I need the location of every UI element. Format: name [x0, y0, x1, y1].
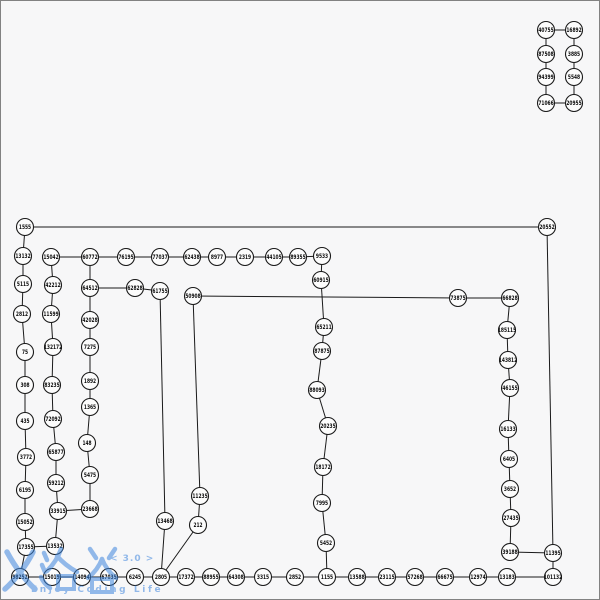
- graph-node-17355[interactable]: 17355: [18, 539, 35, 556]
- graph-node-label: 6405: [503, 456, 515, 463]
- graph-edge-11395-20552: [547, 227, 553, 553]
- graph-node-5475[interactable]: 5475: [82, 467, 99, 484]
- graph-node-65877[interactable]: 65877: [48, 444, 65, 461]
- graph-node-75[interactable]: 75: [17, 344, 34, 361]
- graph-node-46155[interactable]: 46155: [502, 380, 519, 397]
- graph-node-13468[interactable]: 13468: [157, 513, 174, 530]
- graph-node-label: 88955: [203, 574, 218, 581]
- graph-node-13532[interactable]: 13532: [47, 538, 64, 555]
- graph-node-5452[interactable]: 5452: [318, 535, 335, 552]
- graph-node-143812[interactable]: 143812: [499, 352, 517, 369]
- graph-node-label: 59212: [48, 480, 63, 487]
- graph-node-label: 132172: [44, 344, 62, 351]
- graph-node-98252[interactable]: 98252: [12, 569, 29, 586]
- graph-node-label: 60772: [82, 254, 97, 261]
- graph-node-label: 5452: [320, 540, 332, 547]
- graph-node-label: 18172: [315, 464, 330, 471]
- graph-node-42212[interactable]: 42212: [45, 277, 62, 294]
- graph-node-label: 42212: [45, 282, 60, 289]
- graph-node-212[interactable]: 212: [190, 517, 207, 534]
- graph-node-40755[interactable]: 40755: [538, 22, 555, 39]
- graph-node-13588[interactable]: 13588: [349, 569, 366, 586]
- graph-node-label: 1365: [84, 404, 96, 411]
- graph-node-89355[interactable]: 89355: [290, 249, 307, 266]
- graph-node-88955[interactable]: 88955: [203, 569, 220, 586]
- graph-node-label: 66675: [437, 574, 452, 581]
- graph-edge-50908-11235: [193, 296, 200, 496]
- graph-node-label: 2812: [16, 311, 28, 318]
- graph-node-3315[interactable]: 3315: [255, 569, 272, 586]
- graph-node-87508[interactable]: 87508: [538, 46, 555, 63]
- graph-node-label: 16892: [566, 27, 581, 34]
- graph-node-label: 3772: [20, 454, 32, 461]
- graph-node-label: 57268: [407, 574, 422, 581]
- graph-node-label: 11235: [192, 493, 207, 500]
- graph-node-label: 65211: [316, 324, 331, 331]
- graph-node-13132[interactable]: 13132: [15, 248, 32, 265]
- graph-node-148[interactable]: 148: [79, 435, 96, 452]
- graph-node-label: 143812: [499, 357, 517, 364]
- graph-node-label: 23668: [82, 506, 97, 513]
- graph-node-72092[interactable]: 72092: [45, 411, 62, 428]
- graph-node-23668[interactable]: 23668: [82, 501, 99, 518]
- graph-node-15052[interactable]: 15052: [17, 514, 34, 531]
- graph-node-label: 33915: [50, 508, 65, 515]
- graph-node-label: 20235: [320, 423, 335, 430]
- graph-node-label: 101132: [544, 574, 562, 581]
- graph-node-2319[interactable]: 2319: [237, 249, 254, 266]
- graph-node-15019[interactable]: 15019: [44, 569, 61, 586]
- graph-node-16892[interactable]: 16892: [566, 22, 583, 39]
- graph-node-60915[interactable]: 60915: [313, 272, 330, 289]
- graph-node-label: 5475: [84, 472, 96, 479]
- graph-node-1892[interactable]: 1892: [82, 373, 99, 390]
- graph-node-label: 98252: [12, 574, 27, 581]
- graph-node-2812[interactable]: 2812: [14, 306, 31, 323]
- graph-node-label: 1155: [321, 574, 333, 581]
- graph-node-label: 13468: [157, 518, 172, 525]
- graph-node-label: 2852: [289, 574, 301, 581]
- graph-node-label: 71066: [538, 100, 553, 107]
- graph-node-8977[interactable]: 8977: [209, 249, 226, 266]
- graph-node-label: 20955: [566, 100, 581, 107]
- graph-node-435[interactable]: 435: [17, 413, 34, 430]
- graph-node-59212[interactable]: 59212: [48, 475, 65, 492]
- graph-node-11235[interactable]: 11235: [192, 488, 209, 505]
- graph-node-71066[interactable]: 71066: [538, 95, 555, 112]
- graph-node-label: 64308: [228, 574, 243, 581]
- graph-node-label: 11599: [43, 311, 58, 318]
- graph-node-label: 17372: [178, 574, 193, 581]
- graph-node-1155[interactable]: 1155: [319, 569, 336, 586]
- graph-node-65211[interactable]: 65211: [316, 319, 333, 336]
- graph-node-185115[interactable]: 185115: [498, 322, 516, 339]
- graph-node-label: 40755: [538, 27, 553, 34]
- graph-node-label: 148: [82, 440, 91, 447]
- graph-node-308[interactable]: 308: [17, 377, 34, 394]
- graph-node-label: 61755: [152, 288, 167, 295]
- graph-node-64512[interactable]: 64512: [82, 280, 99, 297]
- graph-node-label: 46155: [502, 385, 517, 392]
- graph-node-label: 94399: [538, 74, 553, 81]
- graph-node-1555[interactable]: 1555: [17, 219, 34, 236]
- graph-node-label: 15042: [43, 254, 58, 261]
- graph-node-14094[interactable]: 14094: [74, 569, 91, 586]
- graph-node-label: 12974: [470, 574, 485, 581]
- graph-edge-61755-13468: [160, 291, 165, 521]
- graph-node-23115[interactable]: 23115: [379, 569, 396, 586]
- graph-node-label: 15019: [44, 574, 59, 581]
- graph-node-101132[interactable]: 101132: [544, 569, 562, 586]
- graph-node-label: 16133: [500, 426, 515, 433]
- graph-node-6405[interactable]: 6405: [501, 451, 518, 468]
- graph-node-7275[interactable]: 7275: [82, 339, 99, 356]
- graph-node-label: 13532: [47, 543, 62, 550]
- graph-node-18172[interactable]: 18172: [315, 459, 332, 476]
- graph-node-label: 185115: [498, 327, 516, 334]
- graph-node-label: 1555: [19, 224, 31, 231]
- graph-node-61755[interactable]: 61755: [152, 283, 169, 300]
- graph-node-label: 6195: [19, 487, 31, 494]
- graph-node-60772[interactable]: 60772: [82, 249, 99, 266]
- graph-node-label: 76195: [118, 254, 133, 261]
- graph-node-66828[interactable]: 66828: [502, 290, 519, 307]
- graph-node-94399[interactable]: 94399: [538, 69, 555, 86]
- graph-node-label: 83235: [44, 382, 59, 389]
- graph-node-2805[interactable]: 2805: [153, 569, 170, 586]
- graph-node-label: 50908: [185, 293, 200, 300]
- graph-node-label: 42028: [82, 317, 97, 324]
- graph-node-label: 435: [20, 418, 29, 425]
- graph-node-44105[interactable]: 44105: [266, 249, 283, 266]
- graph-node-label: 75: [22, 349, 28, 356]
- graph-node-6245[interactable]: 6245: [127, 569, 144, 586]
- graph-node-label: 8977: [211, 254, 223, 261]
- graph-node-label: 89355: [290, 254, 305, 261]
- graph-node-16133[interactable]: 16133: [500, 421, 517, 438]
- graph-node-label: 62828: [127, 285, 142, 292]
- graph-node-label: 308: [20, 382, 29, 389]
- graph-node-12974[interactable]: 12974: [470, 569, 487, 586]
- graph-node-label: 39188: [502, 549, 517, 556]
- graph-node-label: 88093: [309, 387, 324, 394]
- graph-node-20235[interactable]: 20235: [320, 418, 337, 435]
- graph-node-label: 3315: [257, 574, 269, 581]
- graph-node-87875[interactable]: 87875: [314, 343, 331, 360]
- graph-node-label: 27435: [503, 515, 518, 522]
- graph-node-15042[interactable]: 15042: [43, 249, 60, 266]
- graph-node-label: 15052: [17, 519, 32, 526]
- graph-node-57268[interactable]: 57268: [407, 569, 424, 586]
- graph-node-label: 5548: [568, 74, 580, 81]
- graph-node-label: 66828: [502, 295, 517, 302]
- graph-node-7995[interactable]: 7995: [314, 495, 331, 512]
- graph-node-label: 3885: [568, 51, 580, 58]
- graph-node-20955[interactable]: 20955: [566, 95, 583, 112]
- graph-node-label: 3652: [504, 486, 516, 493]
- graph-node-83235[interactable]: 83235: [44, 377, 61, 394]
- graph-node-label: 11395: [545, 550, 560, 557]
- graph-node-label: 6245: [129, 574, 141, 581]
- graph-node-label: 23115: [379, 574, 394, 581]
- graph-node-73875[interactable]: 73875: [450, 290, 467, 307]
- graph-node-label: 77037: [152, 254, 167, 261]
- graph-node-label: 17355: [18, 544, 33, 551]
- graph-node-76195[interactable]: 76195: [118, 249, 135, 266]
- graph-node-5548[interactable]: 5548: [566, 69, 583, 86]
- graph-node-11395[interactable]: 11395: [545, 545, 562, 562]
- graph-node-88093[interactable]: 88093: [309, 382, 326, 399]
- graph-edge-50908-73875: [193, 296, 458, 298]
- graph-node-39188[interactable]: 39188: [502, 544, 519, 561]
- graph-node-label: 87875: [314, 348, 329, 355]
- graph-node-label: 44105: [266, 254, 281, 261]
- graph-node-label: 13588: [349, 574, 364, 581]
- graph-node-label: 7275: [84, 344, 96, 351]
- graph-node-13183[interactable]: 13183: [499, 569, 516, 586]
- graph-node-42028[interactable]: 42028: [82, 312, 99, 329]
- graph-node-label: 2805: [155, 574, 167, 581]
- graph-node-label: 62438: [184, 254, 199, 261]
- graph-node-label: 60915: [313, 277, 328, 284]
- graph-node-77037[interactable]: 77037: [152, 249, 169, 266]
- graph-node-27435[interactable]: 27435: [503, 510, 520, 527]
- graph-node-label: 67035: [101, 574, 116, 581]
- graph-node-label: 65877: [48, 449, 63, 456]
- graph-node-label: 212: [193, 522, 202, 529]
- graph-edge-212-2805: [161, 525, 198, 577]
- graph-node-label: 2319: [239, 254, 251, 261]
- graph-node-label: 14094: [74, 574, 89, 581]
- graph-node-3652[interactable]: 3652: [502, 481, 519, 498]
- graph-svg: 4075516892875083885943995548710662095515…: [0, 0, 600, 600]
- graph-node-9533[interactable]: 9533: [314, 248, 331, 265]
- graph-node-5115[interactable]: 5115: [15, 276, 32, 293]
- graph-node-33915[interactable]: 33915: [50, 503, 67, 520]
- graph-node-label: 7995: [316, 500, 328, 507]
- graph-node-20552[interactable]: 20552: [539, 219, 556, 236]
- graph-node-label: 9533: [316, 253, 328, 260]
- graph-node-64308[interactable]: 64308: [228, 569, 245, 586]
- graph-node-label: 73875: [450, 295, 465, 302]
- graph-node-6195[interactable]: 6195: [17, 482, 34, 499]
- graph-node-66675[interactable]: 66675: [437, 569, 454, 586]
- graph-node-62438[interactable]: 62438: [184, 249, 201, 266]
- graph-node-132172[interactable]: 132172: [44, 339, 62, 356]
- graph-node-17372[interactable]: 17372: [178, 569, 195, 586]
- graph-node-label: 13132: [15, 253, 30, 260]
- graph-node-3772[interactable]: 3772: [18, 449, 35, 466]
- graph-node-2852[interactable]: 2852: [287, 569, 304, 586]
- graph-node-67035[interactable]: 67035: [101, 569, 118, 586]
- graph-node-label: 20552: [539, 224, 554, 231]
- graph-node-11599[interactable]: 11599: [43, 306, 60, 323]
- graph-node-label: 1892: [84, 378, 96, 385]
- graph-node-label: 64512: [82, 285, 97, 292]
- graph-node-label: 5115: [17, 281, 29, 288]
- graph-node-label: 13183: [499, 574, 514, 581]
- graph-node-label: 72092: [45, 416, 60, 423]
- graph-node-label: 87508: [538, 51, 553, 58]
- graph-node-1365[interactable]: 1365: [82, 399, 99, 416]
- graph-node-50908[interactable]: 50908: [185, 288, 202, 305]
- graph-canvas: 4075516892875083885943995548710662095515…: [0, 0, 600, 600]
- graph-node-62828[interactable]: 62828: [127, 280, 144, 297]
- graph-node-3885[interactable]: 3885: [566, 46, 583, 63]
